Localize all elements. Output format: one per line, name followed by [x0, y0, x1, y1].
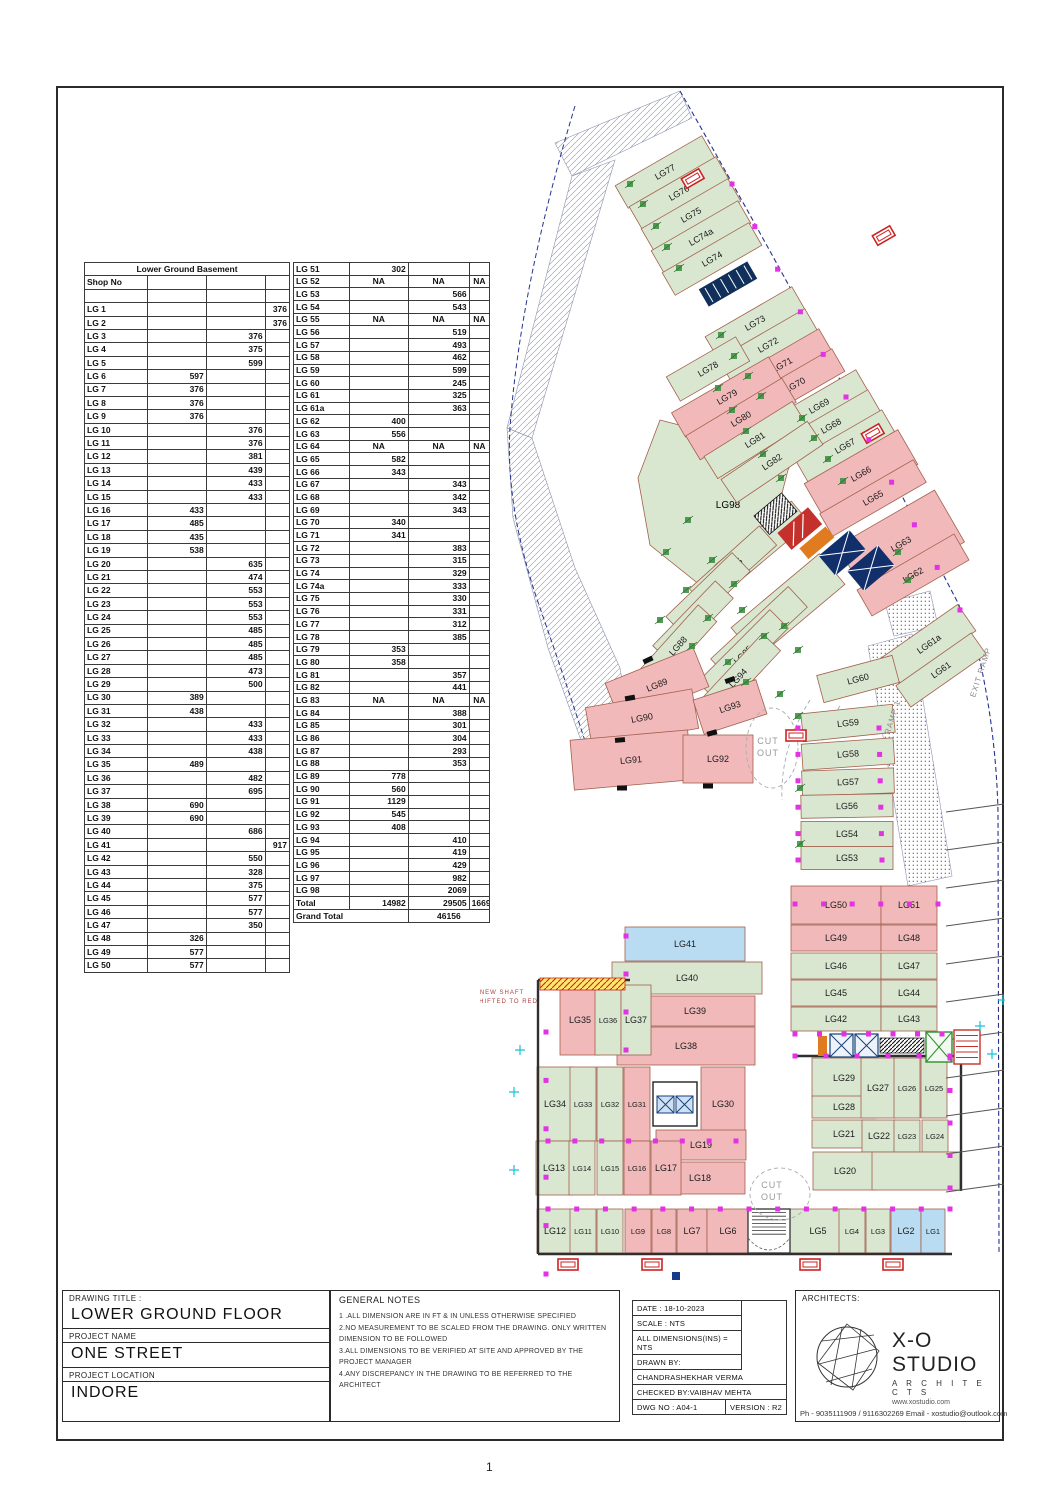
area-cell: [408, 427, 469, 440]
shop-no-cell: LG 46: [85, 905, 148, 918]
table-row: LG 30389: [85, 691, 290, 704]
shop-LG4: LG4: [839, 1209, 865, 1253]
area-cell: 485: [206, 637, 265, 650]
table-row: LG 94410: [294, 833, 490, 846]
shop-no-cell: LG 54: [294, 301, 350, 314]
area-cell: [265, 530, 289, 543]
area-cell: 343: [349, 466, 408, 479]
shop-no-cell: LG 1: [85, 303, 148, 316]
area-cell: 330: [408, 592, 469, 605]
column-marker: [940, 1032, 945, 1037]
table-row: LG 43328: [85, 865, 290, 878]
shop-label: LG10: [601, 1227, 619, 1236]
table-row: LG 88353: [294, 757, 490, 770]
area-cell: 342: [408, 491, 469, 504]
total-row: Total14982295051669: [294, 897, 490, 910]
parking-stall-line: [946, 1146, 1004, 1154]
shop-label: LG29: [833, 1073, 855, 1083]
shop-no-cell: LG 70: [294, 516, 350, 529]
area-cell: [265, 329, 289, 342]
shop-no-cell: LG 37: [85, 785, 148, 798]
floor-plan: LG98LG77LG76LG75LC74aLG74LG73LG72LG71LG7…: [480, 88, 1005, 1298]
table-row: LG 95419: [294, 846, 490, 859]
shop-LG46: LG46: [791, 953, 881, 979]
shop-no-cell: LG 48: [85, 932, 148, 945]
area-cell: 2069: [408, 884, 469, 897]
shop-label: LG4: [845, 1227, 859, 1236]
area-cell: [206, 504, 265, 517]
shop-no-cell: LG 19: [85, 544, 148, 557]
table-row: LG 89778: [294, 770, 490, 783]
fire-door-icon: [642, 1259, 662, 1270]
shop-no-cell: Total: [294, 897, 350, 910]
table-row: LG 36482: [85, 771, 290, 784]
area-cell: [408, 453, 469, 466]
area-cell: 473: [206, 664, 265, 677]
column-marker: [935, 565, 940, 570]
shop-LG53: LG53: [801, 847, 893, 870]
table-row: LG 96429: [294, 859, 490, 872]
table-cell: [147, 289, 206, 302]
area-cell: 381: [206, 450, 265, 463]
area-cell: [147, 731, 206, 744]
area-cell: 358: [349, 656, 408, 669]
table-row: LG 93408: [294, 821, 490, 834]
column-marker: [626, 1139, 631, 1144]
service-icon: [818, 1036, 827, 1056]
table-row: LG 76331: [294, 605, 490, 618]
shop-LG22: LG22: [862, 1120, 896, 1152]
area-cell: 302: [349, 263, 408, 276]
area-cell: 245: [408, 377, 469, 390]
table-row: LG 50577: [85, 959, 290, 972]
column-marker: [632, 1207, 637, 1212]
table-row: LG 72383: [294, 542, 490, 555]
area-cell: 1129: [349, 795, 408, 808]
shop-LG6: LG6: [707, 1209, 749, 1253]
shop-LG45: LG45: [791, 980, 881, 1006]
area-cell: 577: [206, 892, 265, 905]
table-cell: [85, 289, 148, 302]
area-cell: NA: [349, 694, 408, 707]
column-marker: [866, 437, 871, 442]
area-cell: [265, 664, 289, 677]
table-row: LG 17485: [85, 517, 290, 530]
column-marker: [886, 1054, 891, 1059]
area-cell: [349, 377, 408, 390]
table-row: LG 5599: [85, 356, 290, 369]
shop-label: LG53: [836, 853, 858, 863]
grand-total-value: 46156: [408, 910, 489, 923]
area-cell: [349, 630, 408, 643]
area-cell: [265, 905, 289, 918]
plant-icon: [681, 586, 691, 594]
area-cell: [349, 301, 408, 314]
area-cell: [206, 316, 265, 329]
shop-label: LG7: [683, 1226, 700, 1236]
table-row: LG 77312: [294, 618, 490, 631]
cutout-label: CUT: [761, 1180, 783, 1190]
shop-no-cell: LG 15: [85, 490, 148, 503]
column-marker: [915, 1032, 920, 1037]
column-marker: [599, 1139, 604, 1144]
column-block: [615, 737, 625, 743]
column-marker: [544, 1078, 549, 1083]
area-cell: 433: [206, 731, 265, 744]
table-row: LG 38690: [85, 798, 290, 811]
column-marker: [948, 1153, 953, 1158]
table-row: LG 25485: [85, 624, 290, 637]
shop-no-cell: LG 3: [85, 329, 148, 342]
area-cell: [147, 463, 206, 476]
table-row: LG 67343: [294, 478, 490, 491]
shop-no-cell: LG 98: [294, 884, 350, 897]
area-cell: [349, 707, 408, 720]
shop-label: LG13: [543, 1163, 565, 1173]
shop-LG48: LG48: [881, 925, 937, 951]
table-row: LG 85301: [294, 719, 490, 732]
area-cell: [265, 370, 289, 383]
area-cell: [349, 351, 408, 364]
column-marker: [793, 1032, 798, 1037]
area-cell: [349, 288, 408, 301]
shop-no-cell: LG 52: [294, 275, 350, 288]
area-cell: [206, 530, 265, 543]
column-marker: [796, 805, 801, 810]
area-cell: 376: [265, 303, 289, 316]
area-cell: [265, 945, 289, 958]
shop-label: LG20: [834, 1166, 856, 1176]
shop-label: LG17: [655, 1163, 677, 1173]
column-marker: [775, 267, 780, 272]
area-cell: 553: [206, 611, 265, 624]
table-row: LG 41917: [85, 838, 290, 851]
area-cell: 435: [147, 530, 206, 543]
area-cell: 582: [349, 453, 408, 466]
table-row: LG 12381: [85, 450, 290, 463]
table-row: LG 8376: [85, 396, 290, 409]
area-cell: [265, 611, 289, 624]
area-cell: 408: [349, 821, 408, 834]
column-marker: [775, 1207, 780, 1212]
shop-no-cell: LG 55: [294, 313, 350, 326]
column-marker: [574, 1207, 579, 1212]
column-marker: [821, 352, 826, 357]
shop-LG7: LG7: [677, 1209, 707, 1253]
table-row: LG 73315: [294, 554, 490, 567]
area-cell: [147, 852, 206, 865]
table-row: LG 982069: [294, 884, 490, 897]
shop-no-cell: LG 14: [85, 477, 148, 490]
column-marker: [544, 1030, 549, 1035]
shop-LG23: LG23: [894, 1120, 920, 1152]
table-row: LG 20635: [85, 557, 290, 570]
area-cell: [265, 356, 289, 369]
shop-label: LG45: [825, 988, 847, 998]
shop-label: LG31: [628, 1100, 646, 1109]
area-cell: 389: [147, 691, 206, 704]
shop-no-cell: LG 91: [294, 795, 350, 808]
cutout-label: OUT: [761, 1192, 783, 1202]
area-cell: [265, 477, 289, 490]
column-marker: [889, 480, 894, 485]
shop-label: LG46: [825, 961, 847, 971]
table-row: LG 84388: [294, 707, 490, 720]
table-row: LG 79353: [294, 643, 490, 656]
column-marker: [948, 1088, 953, 1093]
parking-stall-line: [946, 1108, 1004, 1116]
area-cell: [349, 884, 408, 897]
column-marker: [796, 752, 801, 757]
column-marker: [689, 1207, 694, 1212]
shop-no-cell: LG 50: [85, 959, 148, 972]
area-cell: [349, 669, 408, 682]
table-row: LG 22553: [85, 584, 290, 597]
area-cell: 340: [349, 516, 408, 529]
table-row: LG 54543: [294, 301, 490, 314]
table-row: LG 60245: [294, 377, 490, 390]
shop-no-cell: LG 12: [85, 450, 148, 463]
column-marker: [734, 1139, 739, 1144]
drawing-title: LOWER GROUND FLOOR: [63, 1304, 329, 1329]
drawn-by-label: DRAWN BY:: [633, 1355, 742, 1370]
table-row: LG 81357: [294, 669, 490, 682]
area-cell: [265, 932, 289, 945]
table-row: [85, 289, 290, 302]
shop-no-cell: LG 90: [294, 783, 350, 796]
survey-mark-icon: [509, 1165, 519, 1175]
area-cell: [206, 396, 265, 409]
area-cell: [265, 745, 289, 758]
shop-label: LG92: [707, 754, 729, 764]
shop-LG37: LG37: [621, 985, 651, 1055]
column-marker: [544, 1272, 549, 1277]
column-marker: [624, 972, 629, 977]
shop-label: LG18: [689, 1173, 711, 1183]
column-marker: [877, 752, 882, 757]
area-cell: [265, 812, 289, 825]
area-cell: [206, 691, 265, 704]
table-row: LG 13439: [85, 463, 290, 476]
table-row: LG 45577: [85, 892, 290, 905]
shop-label: LG23: [898, 1132, 916, 1141]
table-row: LG 11376: [85, 437, 290, 450]
shop-no-cell: LG 53: [294, 288, 350, 301]
area-cell: [206, 370, 265, 383]
area-cell: [265, 410, 289, 423]
area-cell: [408, 795, 469, 808]
area-cell: [349, 389, 408, 402]
area-cell: [349, 592, 408, 605]
column-marker: [624, 934, 629, 939]
table-row: LG 6597: [85, 370, 290, 383]
survey-mark-icon: [509, 1087, 519, 1097]
shop-no-cell: LG 23: [85, 597, 148, 610]
shop-no-cell: LG 68: [294, 491, 350, 504]
area-cell: [147, 356, 206, 369]
column-marker: [796, 778, 801, 783]
shop-LG8: LG8: [652, 1209, 676, 1253]
table-row: LG 46577: [85, 905, 290, 918]
shop-no-cell: LG 49: [85, 945, 148, 958]
column-marker: [919, 1207, 924, 1212]
shop-LG3: LG3: [866, 1209, 890, 1253]
table-row: LG 27485: [85, 651, 290, 664]
area-cell: 482: [206, 771, 265, 784]
page-number: 1: [486, 1460, 493, 1474]
shop-LG92: LG92: [683, 735, 753, 783]
shop-label: LG43: [898, 1014, 920, 1024]
shop-label: LG22: [868, 1131, 890, 1141]
area-cell: [265, 758, 289, 771]
column-marker: [917, 1054, 922, 1059]
table-row: LG 49577: [85, 945, 290, 958]
area-cell: 438: [206, 745, 265, 758]
shaft-note: NEW SHAFT: [480, 990, 524, 996]
shop-no-cell: LG 93: [294, 821, 350, 834]
area-cell: [265, 624, 289, 637]
parking-stall-line: [946, 994, 1004, 1002]
area-cell: [265, 892, 289, 905]
area-cell: [147, 624, 206, 637]
shop-no-cell: LG 95: [294, 846, 350, 859]
shop-no-cell: LG 97: [294, 872, 350, 885]
column-marker: [603, 1207, 608, 1212]
shop-LG91: LG91: [570, 730, 692, 790]
area-cell: [349, 872, 408, 885]
area-cell: 519: [408, 326, 469, 339]
column-marker: [866, 1032, 871, 1037]
table-row: LG 32433: [85, 718, 290, 731]
shop-label: LG28: [833, 1102, 855, 1112]
shop-no-cell: LG 27: [85, 651, 148, 664]
shop-no-cell: LG 63: [294, 427, 350, 440]
area-cell: 376: [206, 437, 265, 450]
column-marker: [624, 1010, 629, 1015]
shop-no-cell: LG 25: [85, 624, 148, 637]
shop-LG17: LG17: [651, 1141, 681, 1195]
version-field: VERSION : R2: [725, 1400, 786, 1414]
area-cell: [147, 651, 206, 664]
shop-no-cell: LG 24: [85, 611, 148, 624]
shop-no-cell: LG 22: [85, 584, 148, 597]
area-cell: [408, 466, 469, 479]
shop-no-cell: LG 92: [294, 808, 350, 821]
column-marker: [850, 902, 855, 907]
column-marker: [948, 1054, 953, 1059]
shop-no-cell: LG 81: [294, 669, 350, 682]
shop-no-cell: LG 38: [85, 798, 148, 811]
area-cell: 538: [147, 544, 206, 557]
shop-no-cell: LG 76: [294, 605, 350, 618]
table-row: LG 42550: [85, 852, 290, 865]
area-cell: 293: [408, 745, 469, 758]
area-cell: [147, 771, 206, 784]
area-cell: 577: [147, 959, 206, 972]
area-cell: [147, 477, 206, 490]
shop-label: LG56: [836, 801, 858, 811]
architects-label: ARCHITECTS:: [796, 1291, 999, 1304]
area-cell: [147, 557, 206, 570]
area-cell: 543: [408, 301, 469, 314]
parking-stall-line: [946, 1070, 1004, 1078]
column-marker: [544, 1223, 549, 1228]
shop-no-cell: LG 42: [85, 852, 148, 865]
table-row: LG 58462: [294, 351, 490, 364]
table-row: LG 21474: [85, 570, 290, 583]
shop-label: LG11: [574, 1227, 592, 1236]
area-cell: [349, 339, 408, 352]
table-row: LG 40686: [85, 825, 290, 838]
table-row: LG 78385: [294, 630, 490, 643]
column-marker: [878, 805, 883, 810]
shop-no-cell: LG 29: [85, 678, 148, 691]
shop-label: LG15: [601, 1164, 619, 1173]
table-row: LG 52NANANA: [294, 275, 490, 288]
area-cell: [349, 833, 408, 846]
shop-LG41: LG41: [625, 927, 745, 961]
table-row: LG 71341: [294, 529, 490, 542]
shop-no-cell: LG 69: [294, 504, 350, 517]
table-row: LG 16433: [85, 504, 290, 517]
shop-LG9: LG9: [625, 1209, 651, 1253]
area-cell: [147, 745, 206, 758]
column-marker: [796, 831, 801, 836]
shop-no-cell: LG 66: [294, 466, 350, 479]
area-cell: [408, 808, 469, 821]
shop-LG11: LG11: [570, 1209, 596, 1253]
shop-no-cell: LG 6: [85, 370, 148, 383]
shop-label: LG54: [836, 829, 858, 839]
column-marker: [948, 1121, 953, 1126]
fire-door-icon: [558, 1259, 578, 1270]
general-note: 3.ALL DIMENSIONS TO BE VERIFIED AT SITE …: [339, 1346, 611, 1369]
shop-no-cell: LG 7: [85, 383, 148, 396]
general-note: 2.NO MEASUREMENT TO BE SCALED FROM THE D…: [339, 1323, 611, 1346]
table-row: LG 74a333: [294, 580, 490, 593]
shop-no-cell: LG 35: [85, 758, 148, 771]
column-marker: [653, 1139, 658, 1144]
area-cell: [147, 570, 206, 583]
area-cell: 385: [408, 630, 469, 643]
travelator-icon: [880, 1038, 924, 1053]
area-cell: 553: [206, 584, 265, 597]
table-row: LG 29500: [85, 678, 290, 691]
area-cell: NA: [349, 313, 408, 326]
column-marker: [878, 778, 883, 783]
table-row: LG 14433: [85, 477, 290, 490]
shop-label: LG21: [833, 1129, 855, 1139]
area-table-right: LG 51302LG 52NANANALG 53566LG 54543LG 55…: [293, 262, 490, 923]
column-marker: [796, 858, 801, 863]
shop-label: LG38: [675, 1041, 697, 1051]
area-cell: [265, 517, 289, 530]
area-cell: [147, 597, 206, 610]
area-cell: 982: [408, 872, 469, 885]
area-cell: 29505: [408, 897, 469, 910]
general-notes-title: GENERAL NOTES: [331, 1291, 619, 1305]
grand-total-label: Grand Total: [294, 910, 409, 923]
general-note: 1 .ALL DIMENSION ARE IN FT & IN UNLESS O…: [339, 1311, 611, 1323]
area-cell: 550: [206, 852, 265, 865]
table-row: LG 65582: [294, 453, 490, 466]
column-marker: [948, 1207, 953, 1212]
shop-no-cell: LG 94: [294, 833, 350, 846]
area-cell: 485: [147, 517, 206, 530]
shop-no-cell: LG 44: [85, 878, 148, 891]
shop-no-cell: LG 36: [85, 771, 148, 784]
shop-LG44: LG44: [881, 980, 937, 1006]
